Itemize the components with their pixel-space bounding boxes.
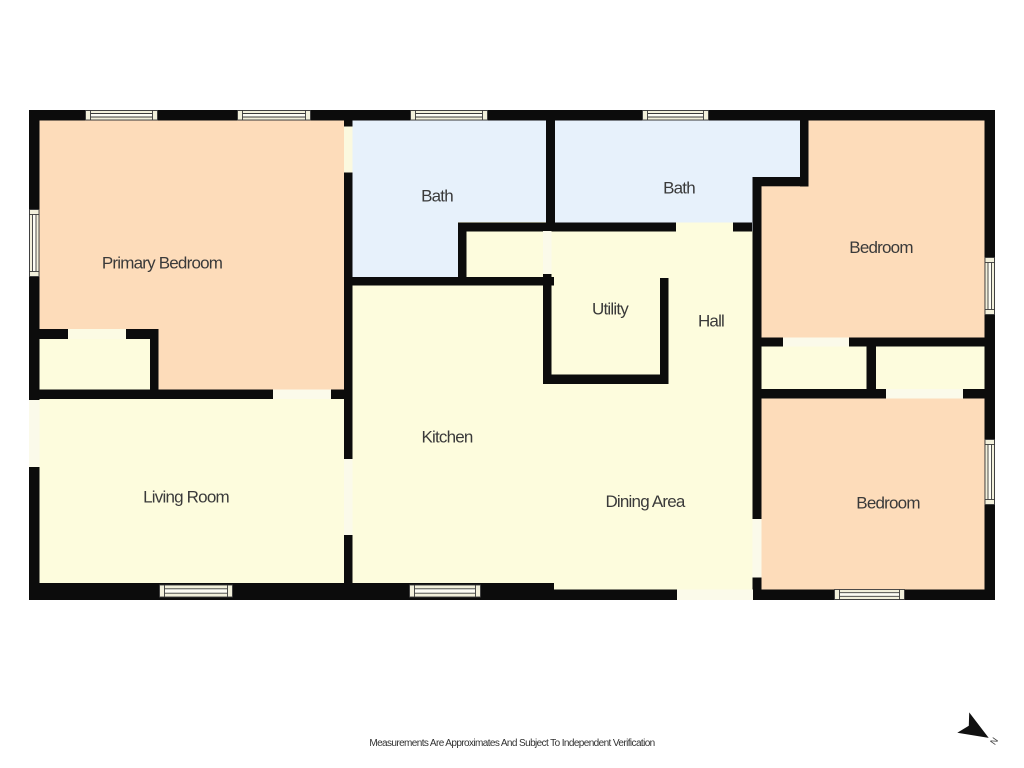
svg-text:Dining Area: Dining Area (605, 492, 685, 511)
svg-text:Utility: Utility (592, 300, 629, 319)
svg-text:Hall: Hall (698, 312, 724, 331)
svg-text:Bath: Bath (663, 179, 695, 198)
svg-text:Bedroom: Bedroom (856, 494, 920, 513)
svg-text:Measurements Are Approximates: Measurements Are Approximates And Subjec… (369, 738, 654, 749)
svg-text:Primary Bedroom: Primary Bedroom (102, 254, 223, 273)
svg-text:Living Room: Living Room (143, 488, 229, 507)
svg-text:Bedroom: Bedroom (849, 238, 913, 257)
svg-text:Kitchen: Kitchen (421, 428, 472, 447)
svg-text:Bath: Bath (421, 187, 453, 206)
